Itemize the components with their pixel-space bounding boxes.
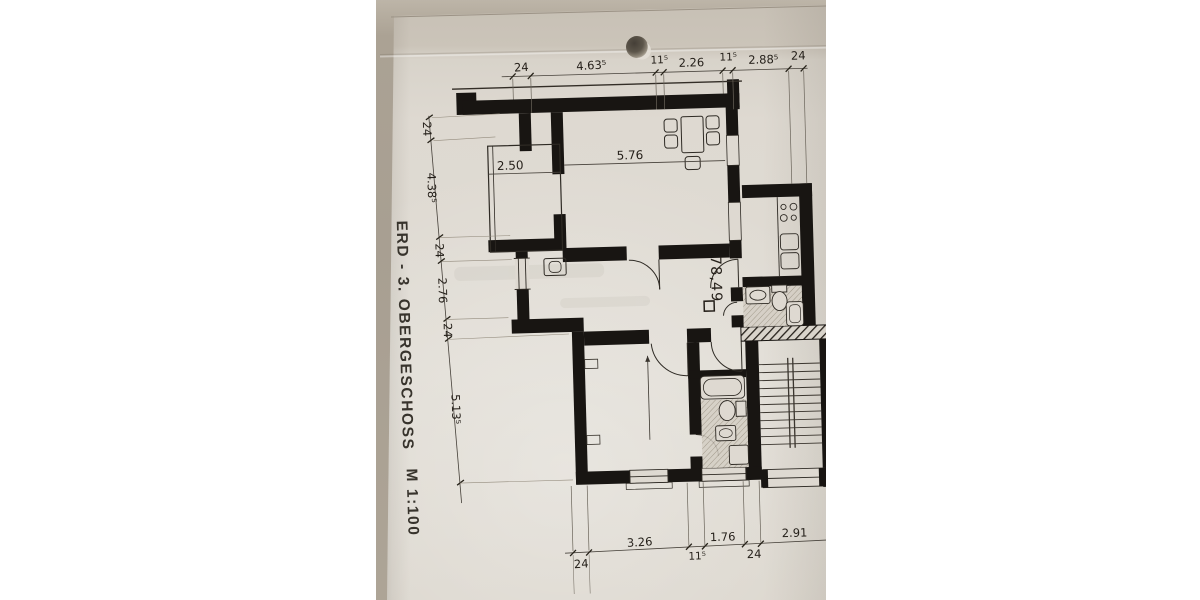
wall-west-lower (572, 332, 588, 484)
arrow-head (645, 356, 650, 362)
living-width-label: 5.76 (616, 148, 643, 163)
dim-chain-top: 24 4.63⁵ 11⁵ 2.26 11⁵ 2.88⁵ 24 (501, 48, 811, 191)
wall-south-1 (576, 470, 630, 485)
wall-north (462, 93, 739, 115)
toilet-icon (772, 285, 788, 311)
wall-hall-south-2 (687, 328, 711, 343)
wall-bath1-west-lower (731, 315, 743, 327)
plan-scale-text: M 1:100 (403, 468, 422, 537)
stairwell-window (761, 468, 826, 488)
chair-icon (706, 132, 719, 145)
dim-top-6: 24 (791, 48, 806, 62)
wall-stairwell-north-hatched (741, 325, 827, 341)
ink-bleed-artifact (454, 262, 650, 311)
stove-icon (780, 203, 797, 221)
dim-bottom-0: 24 (573, 556, 588, 571)
washing-machine-icon (729, 445, 749, 465)
counter-edge (777, 197, 779, 276)
dim-left-2: 24 (432, 243, 446, 258)
dim-bottom-1: 3.26 (626, 534, 652, 550)
dim-left-4: 24 (441, 323, 455, 338)
wall-corridor-north-left (563, 246, 627, 262)
screenshot-canvas: 2.50 5.76 78,49 (0, 0, 1200, 600)
chair-icon (685, 156, 700, 169)
bathtub-icon (700, 375, 745, 399)
balcony-slab-edge (452, 81, 742, 89)
wall-east-living-mid (727, 165, 740, 202)
dim-bottom-4: 24 (747, 547, 762, 561)
kitchen-opening-jambs (728, 202, 741, 240)
dim-top-2: 11⁵ (650, 54, 668, 66)
dim-top-1: 4.63⁵ (576, 57, 607, 73)
chair-icon (706, 116, 719, 129)
plan-title-text: ERD - 3. OBERGESCHOSS (393, 220, 416, 450)
hole-punch (626, 36, 651, 60)
kitchen-sink-icon (780, 234, 799, 269)
door-bath1 (723, 302, 737, 315)
dim-bottom-3: 1.76 (710, 529, 736, 544)
wall-east-living-upper (725, 93, 738, 135)
door-bedroom (651, 343, 688, 377)
dim-left-0: 24 (420, 121, 434, 136)
area-value: 78,49 (707, 256, 724, 303)
wall-south-2 (668, 468, 702, 482)
loggia-width-label: 2.50 (497, 158, 524, 173)
west-window-gap (515, 258, 530, 289)
door-living-corridor (629, 259, 660, 290)
door-hall (711, 341, 742, 372)
wall-hall-south-1 (584, 330, 649, 346)
dim-left-1: 4.38⁵ (424, 172, 439, 203)
dining-table-icon (681, 116, 704, 153)
dim-top-5: 2.88⁵ (748, 52, 779, 67)
kitchen-fixtures (777, 197, 799, 277)
bed-mark (585, 359, 598, 368)
dim-bottom-2: 11⁵ (688, 550, 706, 562)
hall-window (699, 467, 750, 487)
bedroom-window (626, 469, 673, 489)
washbasin-icon (716, 425, 736, 441)
chair-icon (664, 119, 677, 132)
wall-corridor-south (511, 318, 583, 334)
dim-left-5: 5.13⁵ (449, 394, 464, 425)
dim-top-0: 24 (514, 60, 529, 75)
bed-mark (587, 435, 600, 444)
bedroom-marks (585, 356, 653, 445)
dim-top-3: 2.26 (678, 55, 704, 70)
staircase (759, 357, 822, 449)
paper-top-edge (391, 6, 826, 17)
plan-title: ERD - 3. OBERGESCHOSS M 1:100 (393, 220, 422, 536)
washbasin-icon (746, 286, 770, 304)
dim-bottom-5: 2.91 (782, 525, 808, 540)
dim-left-3: 2.76 (435, 278, 450, 304)
area-label: 78,49 (703, 256, 725, 312)
floor-plan-svg: 2.50 5.76 78,49 (0, 0, 1200, 600)
dim-chain-bottom: 24 3.26 11⁵ 1.76 24 2.91 (563, 479, 834, 594)
dim-top-4: 11⁵ (719, 51, 737, 63)
chair-icon (664, 135, 677, 148)
wall-bedroom-bath (687, 342, 702, 434)
wall-bath1-west-upper (731, 287, 743, 301)
wall-loggia-east-upper (551, 112, 565, 174)
east-living-window (726, 135, 739, 165)
floor-plan-drawing: 2.50 5.76 78,49 (388, 48, 834, 599)
wall-stair-east (819, 325, 832, 487)
room-height-line (648, 356, 650, 440)
wall-south-3 (746, 467, 762, 480)
shower-icon (786, 301, 804, 325)
wall-east-entrance-jamb (729, 240, 741, 258)
